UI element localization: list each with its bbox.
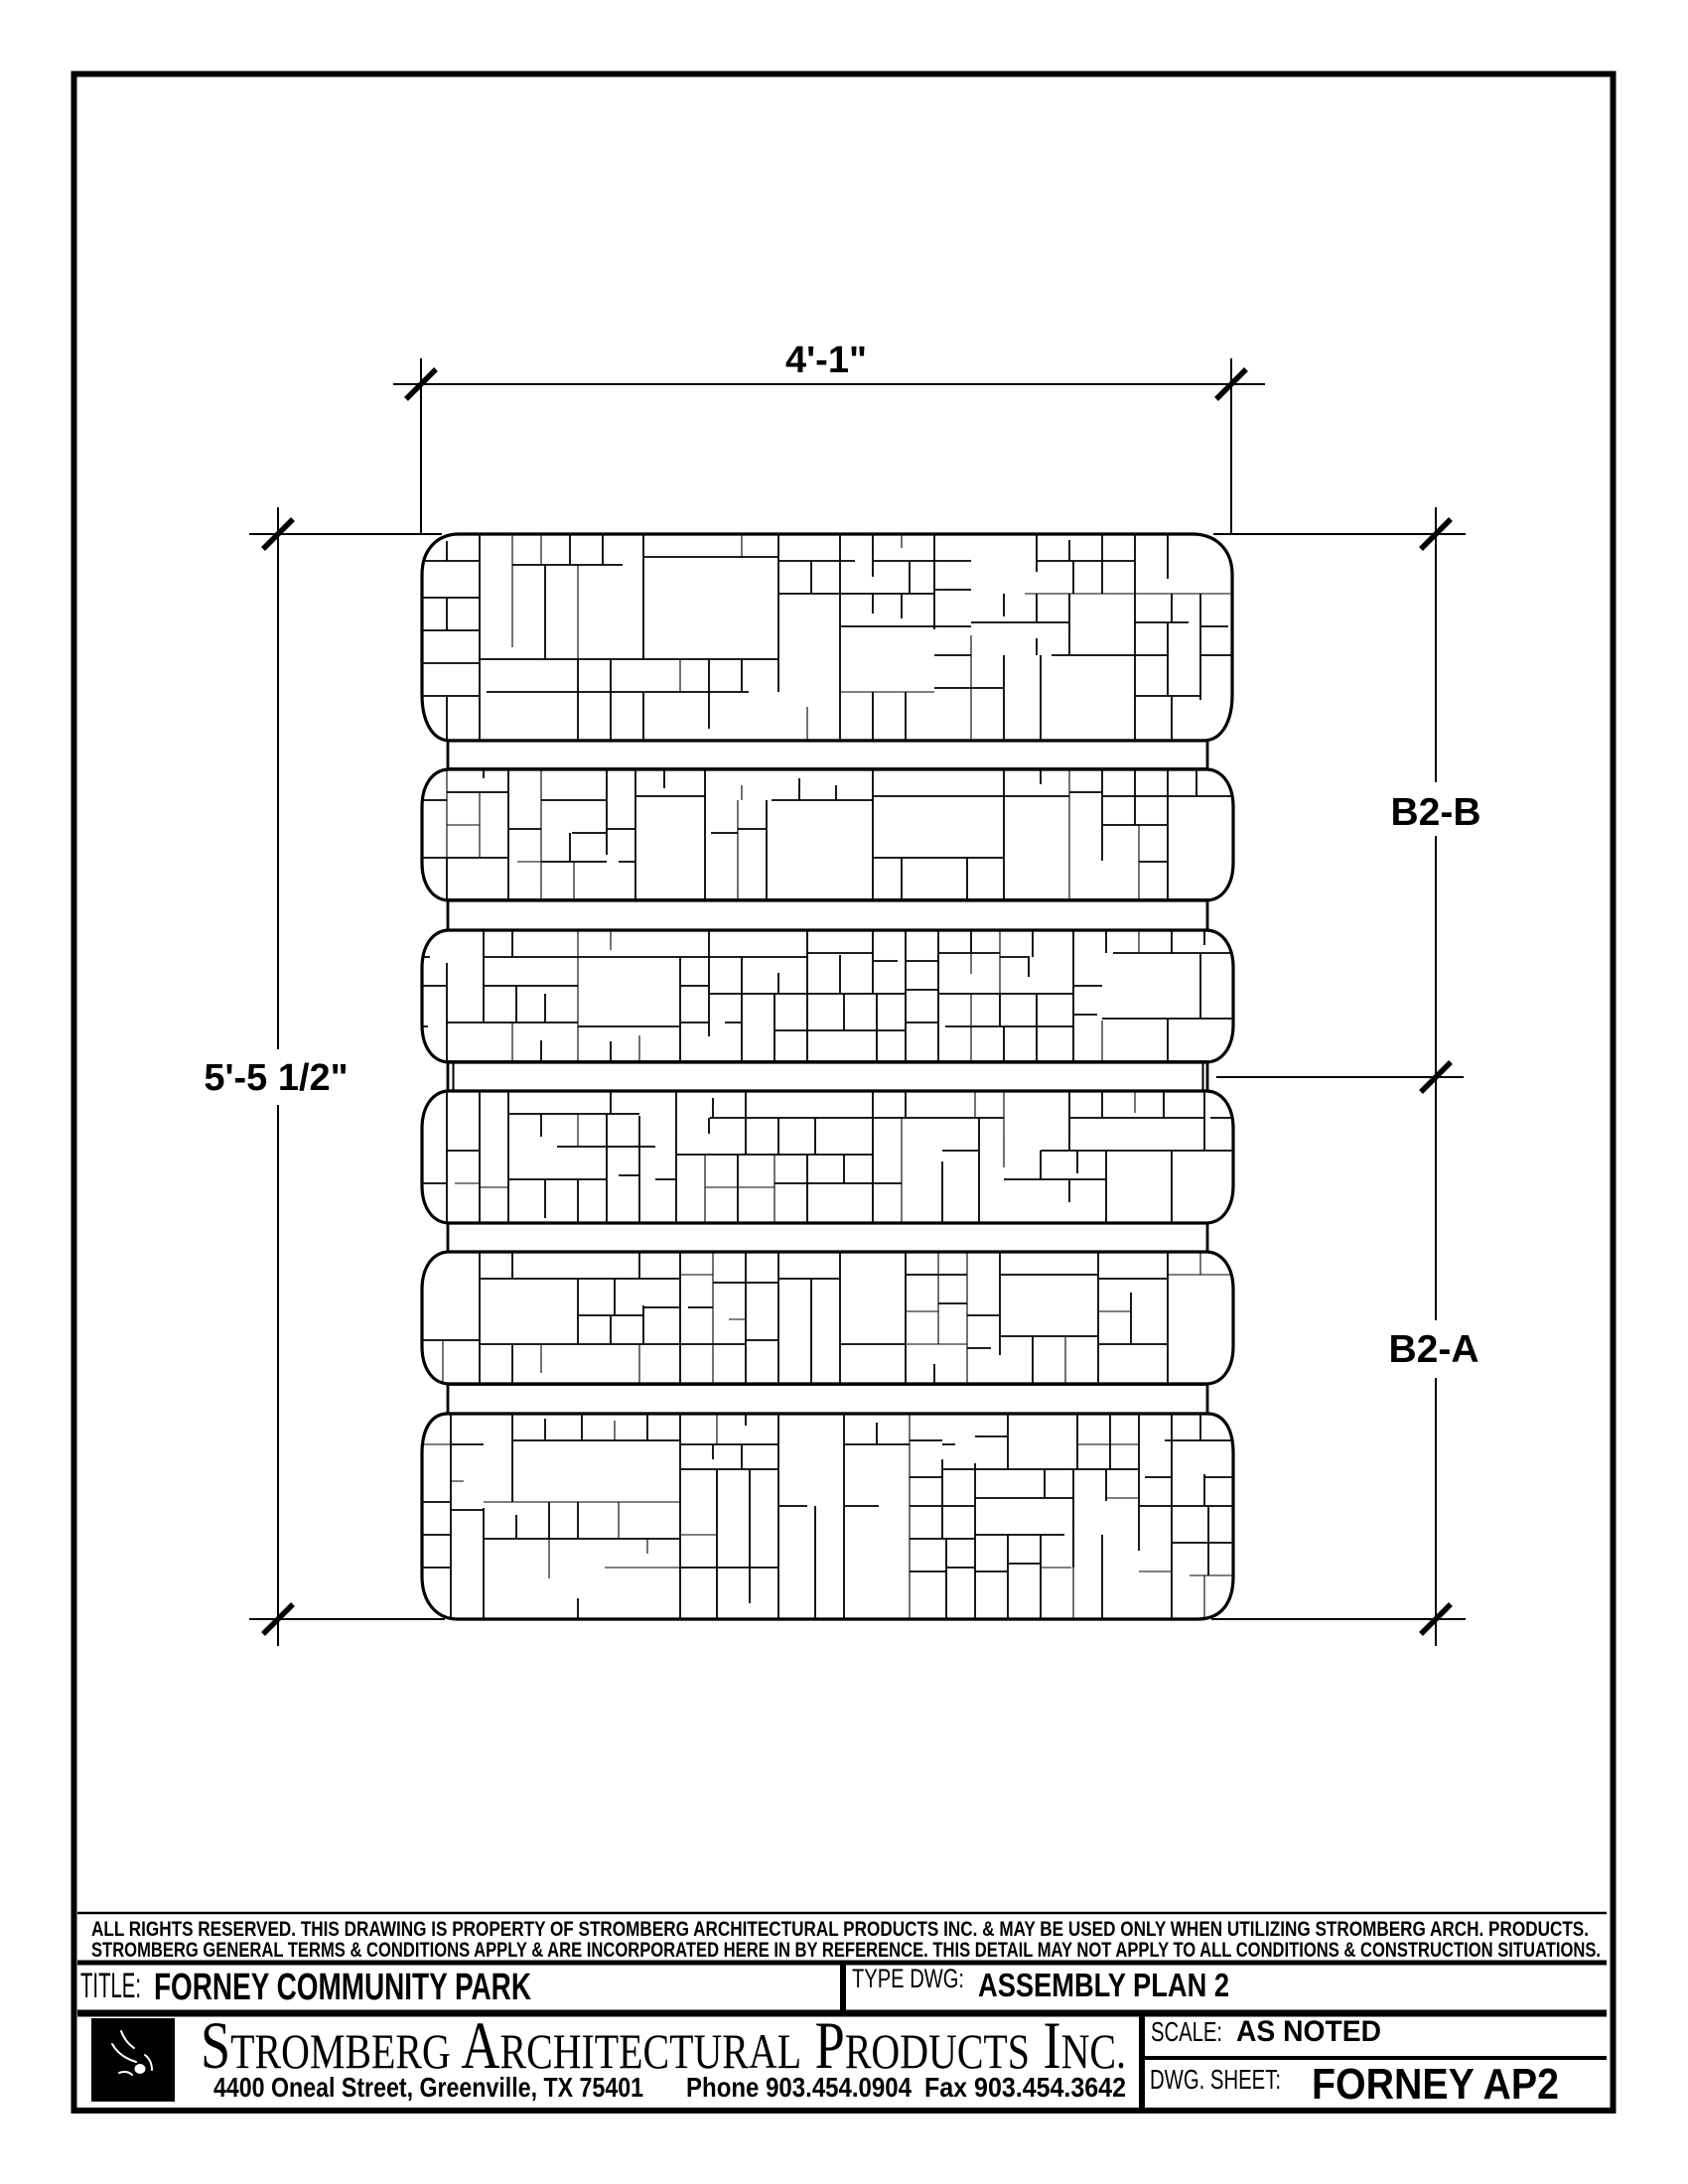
svg-text:B2-A: B2-A — [1388, 1328, 1478, 1371]
svg-text:Phone 903.454.0904: Phone 903.454.0904 — [686, 2072, 912, 2103]
svg-text:5'-5 1/2": 5'-5 1/2" — [204, 1057, 348, 1099]
svg-text:ASSEMBLY PLAN 2: ASSEMBLY PLAN 2 — [978, 1967, 1229, 2003]
svg-text:AS NOTED: AS NOTED — [1236, 2015, 1381, 2048]
svg-text:B2-B: B2-B — [1390, 791, 1480, 834]
svg-text:4400 Oneal Street, Greenville,: 4400 Oneal Street, Greenville, TX 75401 — [213, 2072, 643, 2103]
svg-text:FORNEY COMMUNITY PARK: FORNEY COMMUNITY PARK — [154, 1967, 531, 2008]
svg-text:Fax 903.454.3642: Fax 903.454.3642 — [924, 2072, 1126, 2103]
svg-text:TYPE DWG:: TYPE DWG: — [852, 1964, 964, 1993]
svg-text:FORNEY AP2: FORNEY AP2 — [1312, 2060, 1559, 2109]
svg-text:DWG. SHEET:: DWG. SHEET: — [1150, 2064, 1281, 2095]
svg-text:STROMBERG GENERAL TERMS & COND: STROMBERG GENERAL TERMS & CONDITIONS APP… — [91, 1939, 1601, 1962]
svg-text:SCALE:: SCALE: — [1151, 2016, 1222, 2047]
svg-text:TITLE:: TITLE: — [80, 1967, 141, 2005]
svg-text:ALL RIGHTS RESERVED. THIS DRAW: ALL RIGHTS RESERVED. THIS DRAWING IS PRO… — [91, 1918, 1589, 1941]
svg-text:4'-1": 4'-1" — [785, 340, 867, 381]
